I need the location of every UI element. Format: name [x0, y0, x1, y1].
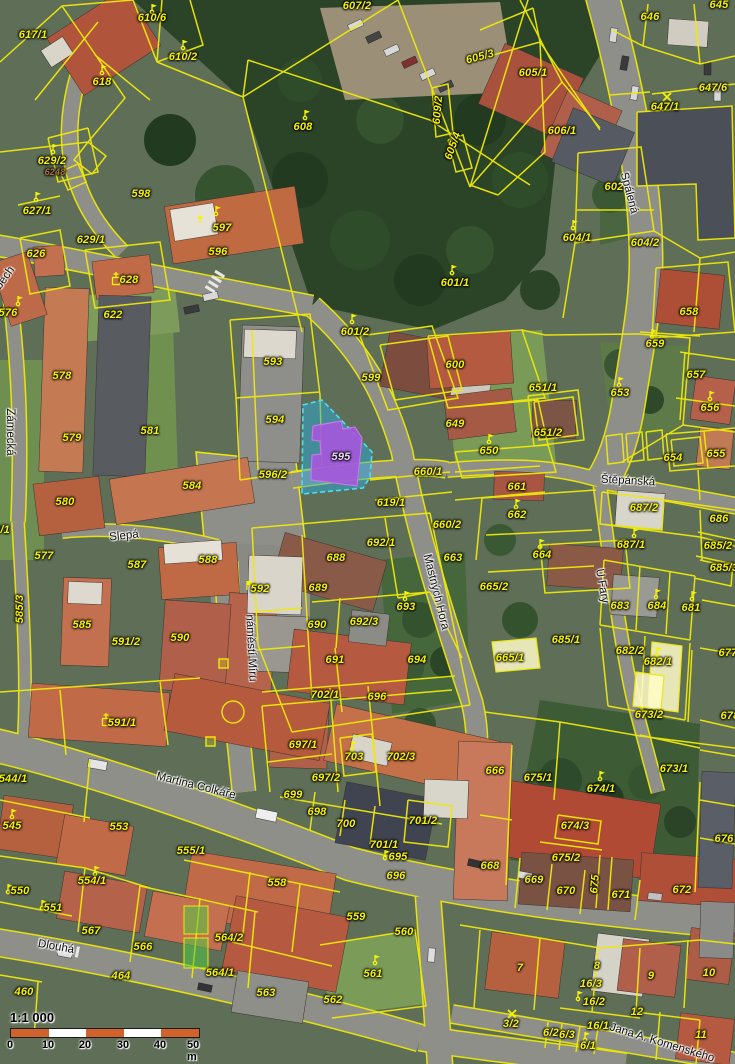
flag-icon [655, 647, 662, 657]
xmark-icon [508, 1010, 516, 1018]
flag-icon [214, 206, 221, 216]
flag-icon [10, 809, 17, 819]
scale-ticks: 01020304050 m [10, 1039, 220, 1053]
flag-icon [40, 900, 47, 910]
scale-tick-label: 10 [42, 1039, 54, 1051]
csq-icon [113, 272, 120, 285]
cross-icon [197, 215, 203, 223]
scale-tick-label: 50 m [187, 1039, 209, 1063]
cadastral-map-canvas[interactable]: 617/1610/6610/2618608607/2629/2624859859… [0, 0, 735, 1064]
flag-icon [487, 434, 494, 444]
fsq-icon [247, 581, 252, 590]
scale-tick-label: 20 [79, 1039, 91, 1051]
flag-icon [598, 771, 605, 781]
flag-icon [6, 884, 13, 894]
xmark-icon [663, 93, 671, 101]
flag-icon [150, 4, 157, 14]
flag-icon [617, 377, 624, 387]
flag-icon [403, 591, 410, 601]
flag-icon [181, 40, 188, 50]
scale-tick-label: 0 [7, 1039, 13, 1051]
flag-icon [383, 850, 390, 860]
scale-segment [124, 1029, 162, 1037]
flag-icon [514, 499, 521, 509]
flag-icon [16, 296, 23, 306]
flag-icon [373, 955, 380, 965]
scale-tick-label: 40 [154, 1039, 166, 1051]
flag-icon [93, 866, 100, 876]
flag-icon [350, 741, 357, 751]
flag-icon [571, 220, 578, 230]
scale-segment [49, 1029, 87, 1037]
flag-icon [350, 314, 357, 324]
flag-icon [303, 110, 310, 120]
flag-icon [708, 391, 715, 401]
flag-icon [34, 192, 41, 202]
flag-icon [450, 265, 457, 275]
scale-ratio: 1:1 000 [10, 1010, 220, 1025]
csq-icon [103, 713, 110, 726]
scale-segment [11, 1029, 49, 1037]
scale-segment [86, 1029, 124, 1037]
scale-segment [161, 1029, 199, 1037]
scale-bar-segments [10, 1028, 200, 1038]
flag-icon [100, 65, 107, 75]
flag-icon [538, 539, 545, 549]
flag-icon [650, 329, 657, 339]
flag-icon [576, 991, 583, 1001]
scale-bar: 1:1 000 01020304050 m [10, 1010, 220, 1053]
flag-icon [51, 144, 58, 154]
map-symbols-layer [0, 0, 735, 1064]
flag-icon [632, 528, 639, 538]
scale-tick-label: 30 [117, 1039, 129, 1051]
flag-icon [583, 1032, 590, 1042]
flag-icon [654, 589, 661, 599]
flag-icon [690, 591, 697, 601]
